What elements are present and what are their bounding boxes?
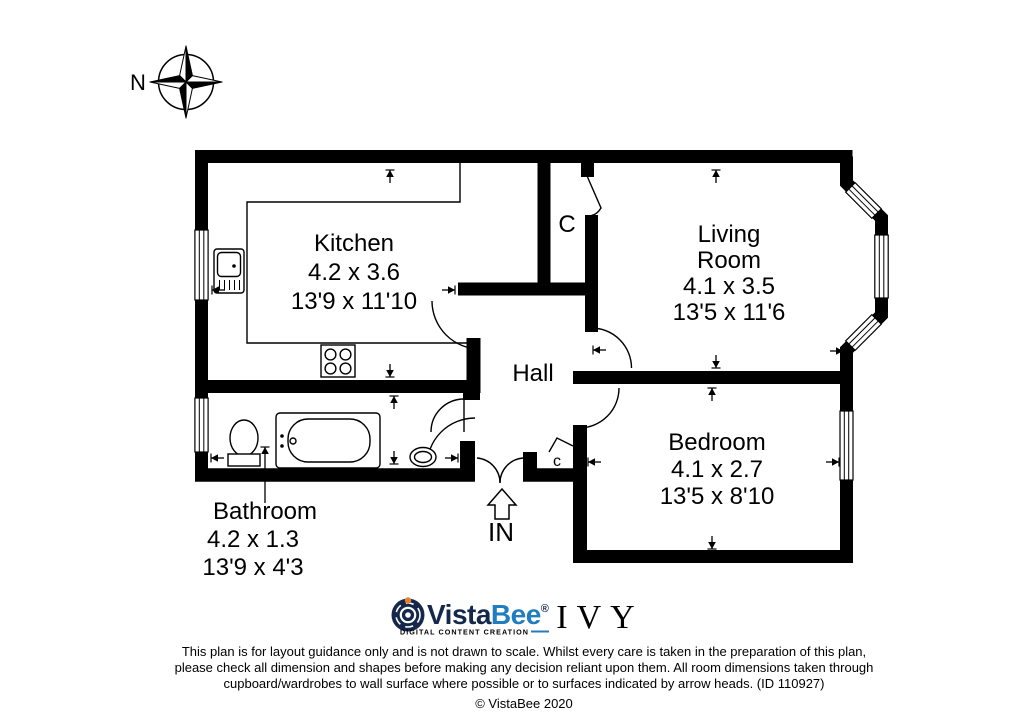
- living-name-line1: Living: [698, 221, 761, 248]
- ivy-logo: IVY: [556, 599, 643, 636]
- toilet-icon: [228, 420, 260, 466]
- bedroom-window: [840, 411, 853, 480]
- disclaimer-line2: please check all dimension and shapes be…: [175, 660, 874, 675]
- kitchen-name: Kitchen: [314, 230, 394, 257]
- bathroom-imperial: 13'9 x 4'3: [202, 554, 303, 581]
- entrance-label: IN: [488, 517, 514, 547]
- bedroom-name: Bedroom: [668, 429, 765, 456]
- cupboard-small-label: c: [553, 453, 561, 470]
- sink-icon: [214, 249, 244, 293]
- hob-icon: [321, 345, 355, 377]
- bathtub-icon: [276, 413, 380, 468]
- bathroom-window: [195, 398, 208, 452]
- compass-north-label: N: [130, 70, 146, 95]
- living-imperial: 13'5 x 11'6: [673, 299, 786, 326]
- copyright: © VistaBee 2020: [475, 696, 573, 711]
- vistabee-tagline: DIGITAL CONTENT CREATION: [400, 628, 529, 637]
- living-name-line2: Room: [697, 247, 761, 274]
- kitchen-window: [195, 230, 208, 300]
- bathroom-name: Bathroom: [213, 498, 317, 525]
- hall-name: Hall: [512, 360, 553, 387]
- disclaimer-line1: This plan is for layout guidance only an…: [182, 644, 866, 659]
- bedroom-metric: 4.1 x 2.7: [671, 456, 763, 483]
- disclaimer-line3: cupboard/wardrobes to wall surface where…: [224, 676, 825, 691]
- kitchen-imperial: 13'9 x 11'10: [291, 288, 417, 315]
- footer-branding: VistaBee® DIGITAL CONTENT CREATION IVY: [392, 597, 644, 636]
- kitchen-metric: 4.2 x 3.6: [308, 259, 400, 286]
- vistabee-wordmark: VistaBee®: [427, 599, 549, 630]
- living-metric: 4.1 x 3.5: [683, 273, 775, 300]
- floor-plan: Kitchen 4.2 x 3.6 13'9 x 11'10 Living Ro…: [0, 0, 1024, 724]
- bathroom-metric: 4.2 x 1.3: [207, 526, 299, 553]
- bay-window-middle: [875, 235, 888, 298]
- floor-plan-page: Kitchen 4.2 x 3.6 13'9 x 11'10 Living Ro…: [0, 0, 1024, 724]
- bedroom-imperial: 13'5 x 8'10: [660, 483, 775, 510]
- basin-icon: [410, 448, 436, 467]
- cupboard-label: C: [558, 211, 575, 238]
